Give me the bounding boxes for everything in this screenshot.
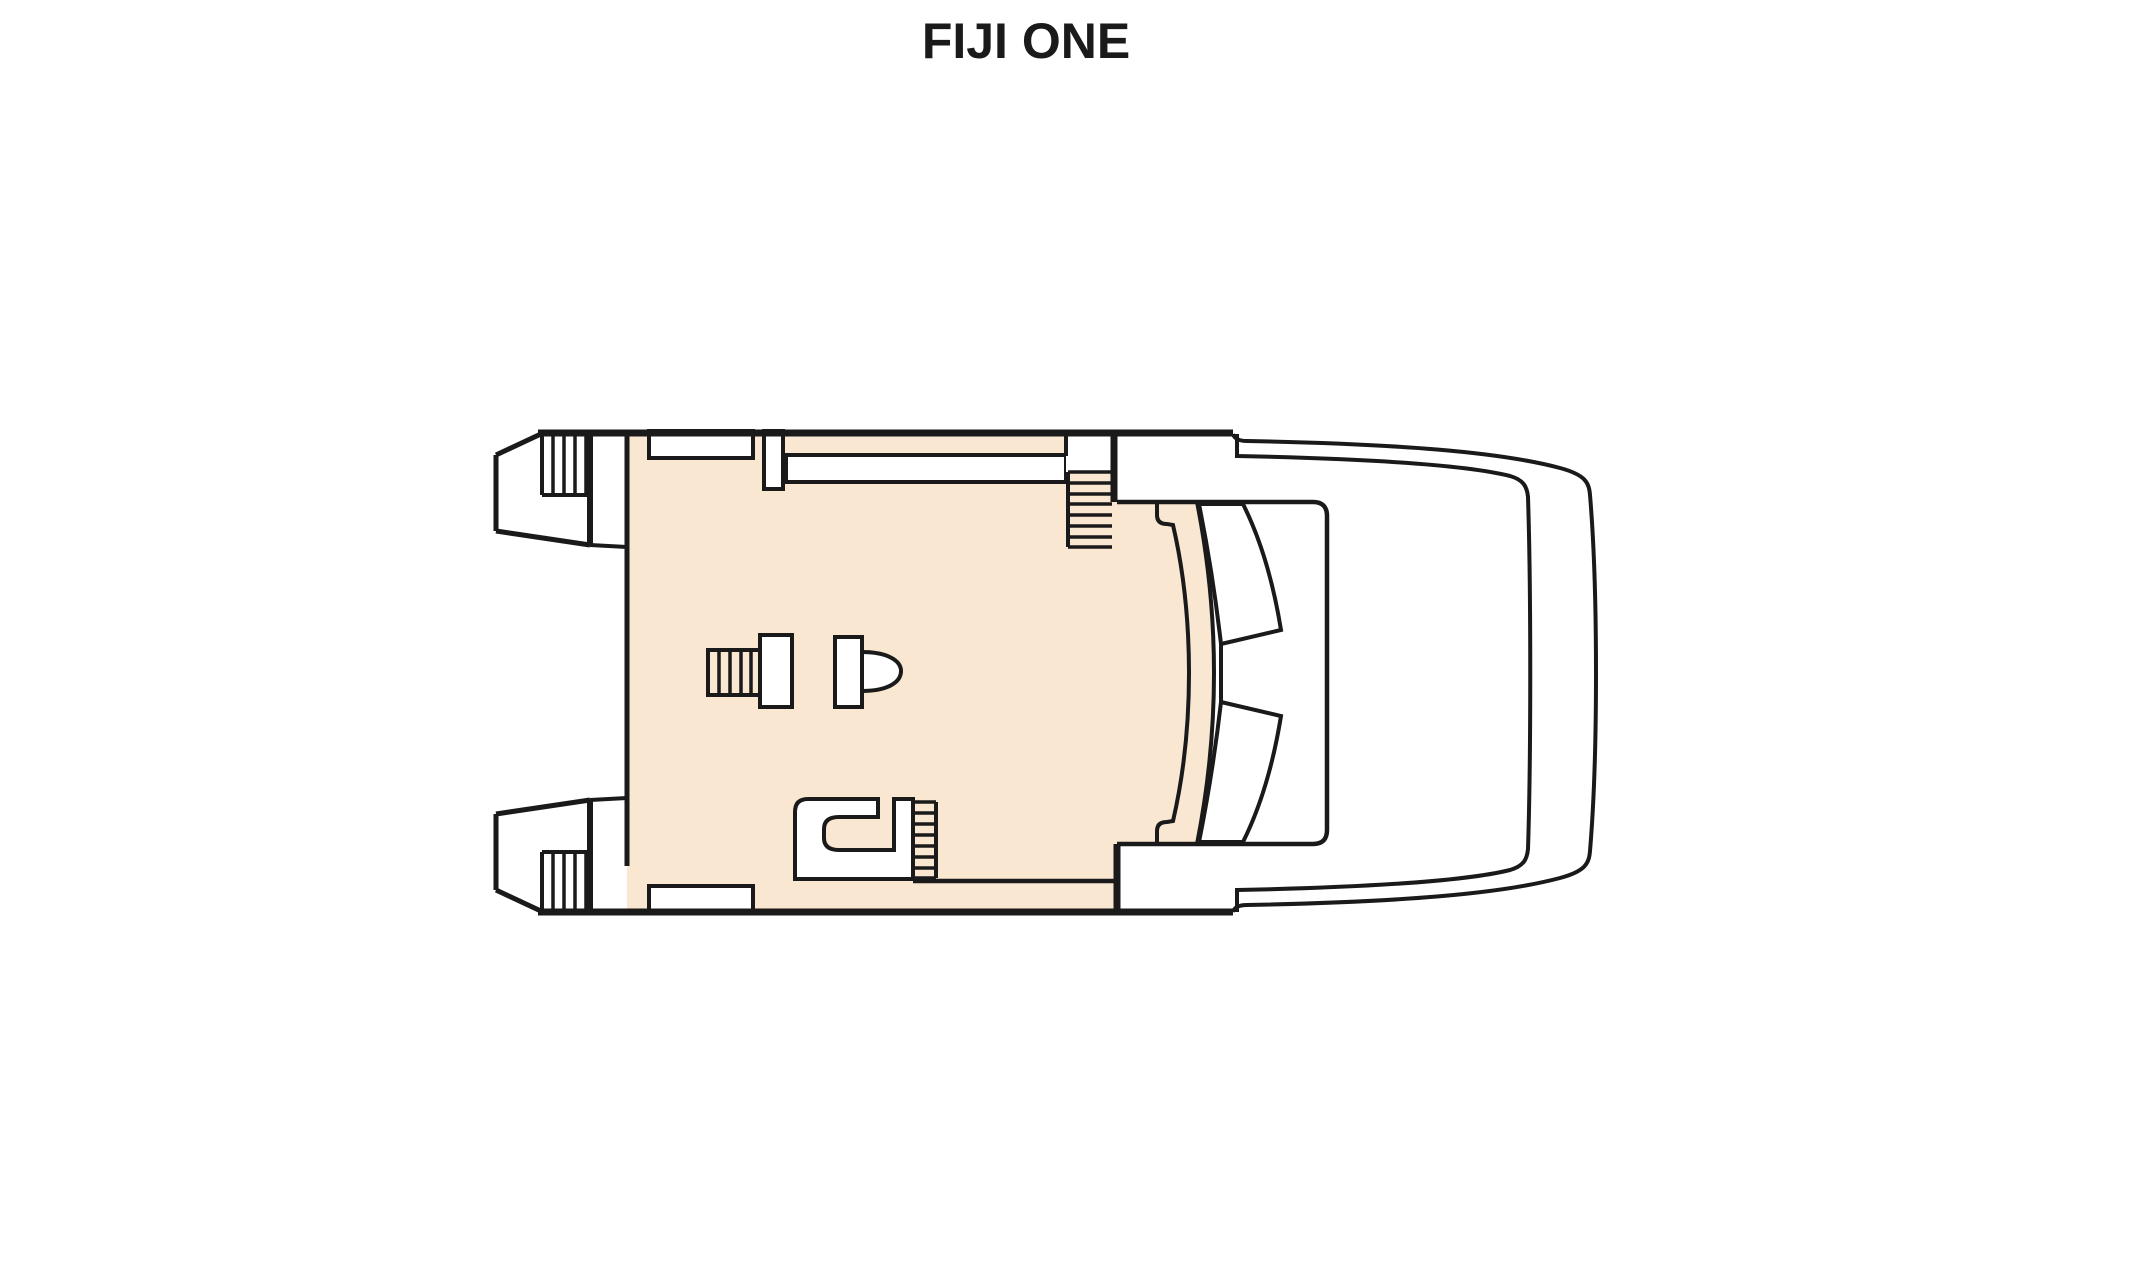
sun-lounger [786,455,1066,482]
starboard-swim-platform [496,798,627,912]
deck-plan-svg [0,0,2152,1279]
helm-console [760,635,792,707]
windbreak-partition [764,431,783,489]
stair-landing [1066,434,1112,472]
flybridge-deck [627,434,1214,913]
port-swim-platform [496,433,627,548]
page: FIJI ONE [0,0,2152,1279]
bow-rail-inner [1237,434,1530,912]
bow-rail-outer [1233,434,1596,912]
